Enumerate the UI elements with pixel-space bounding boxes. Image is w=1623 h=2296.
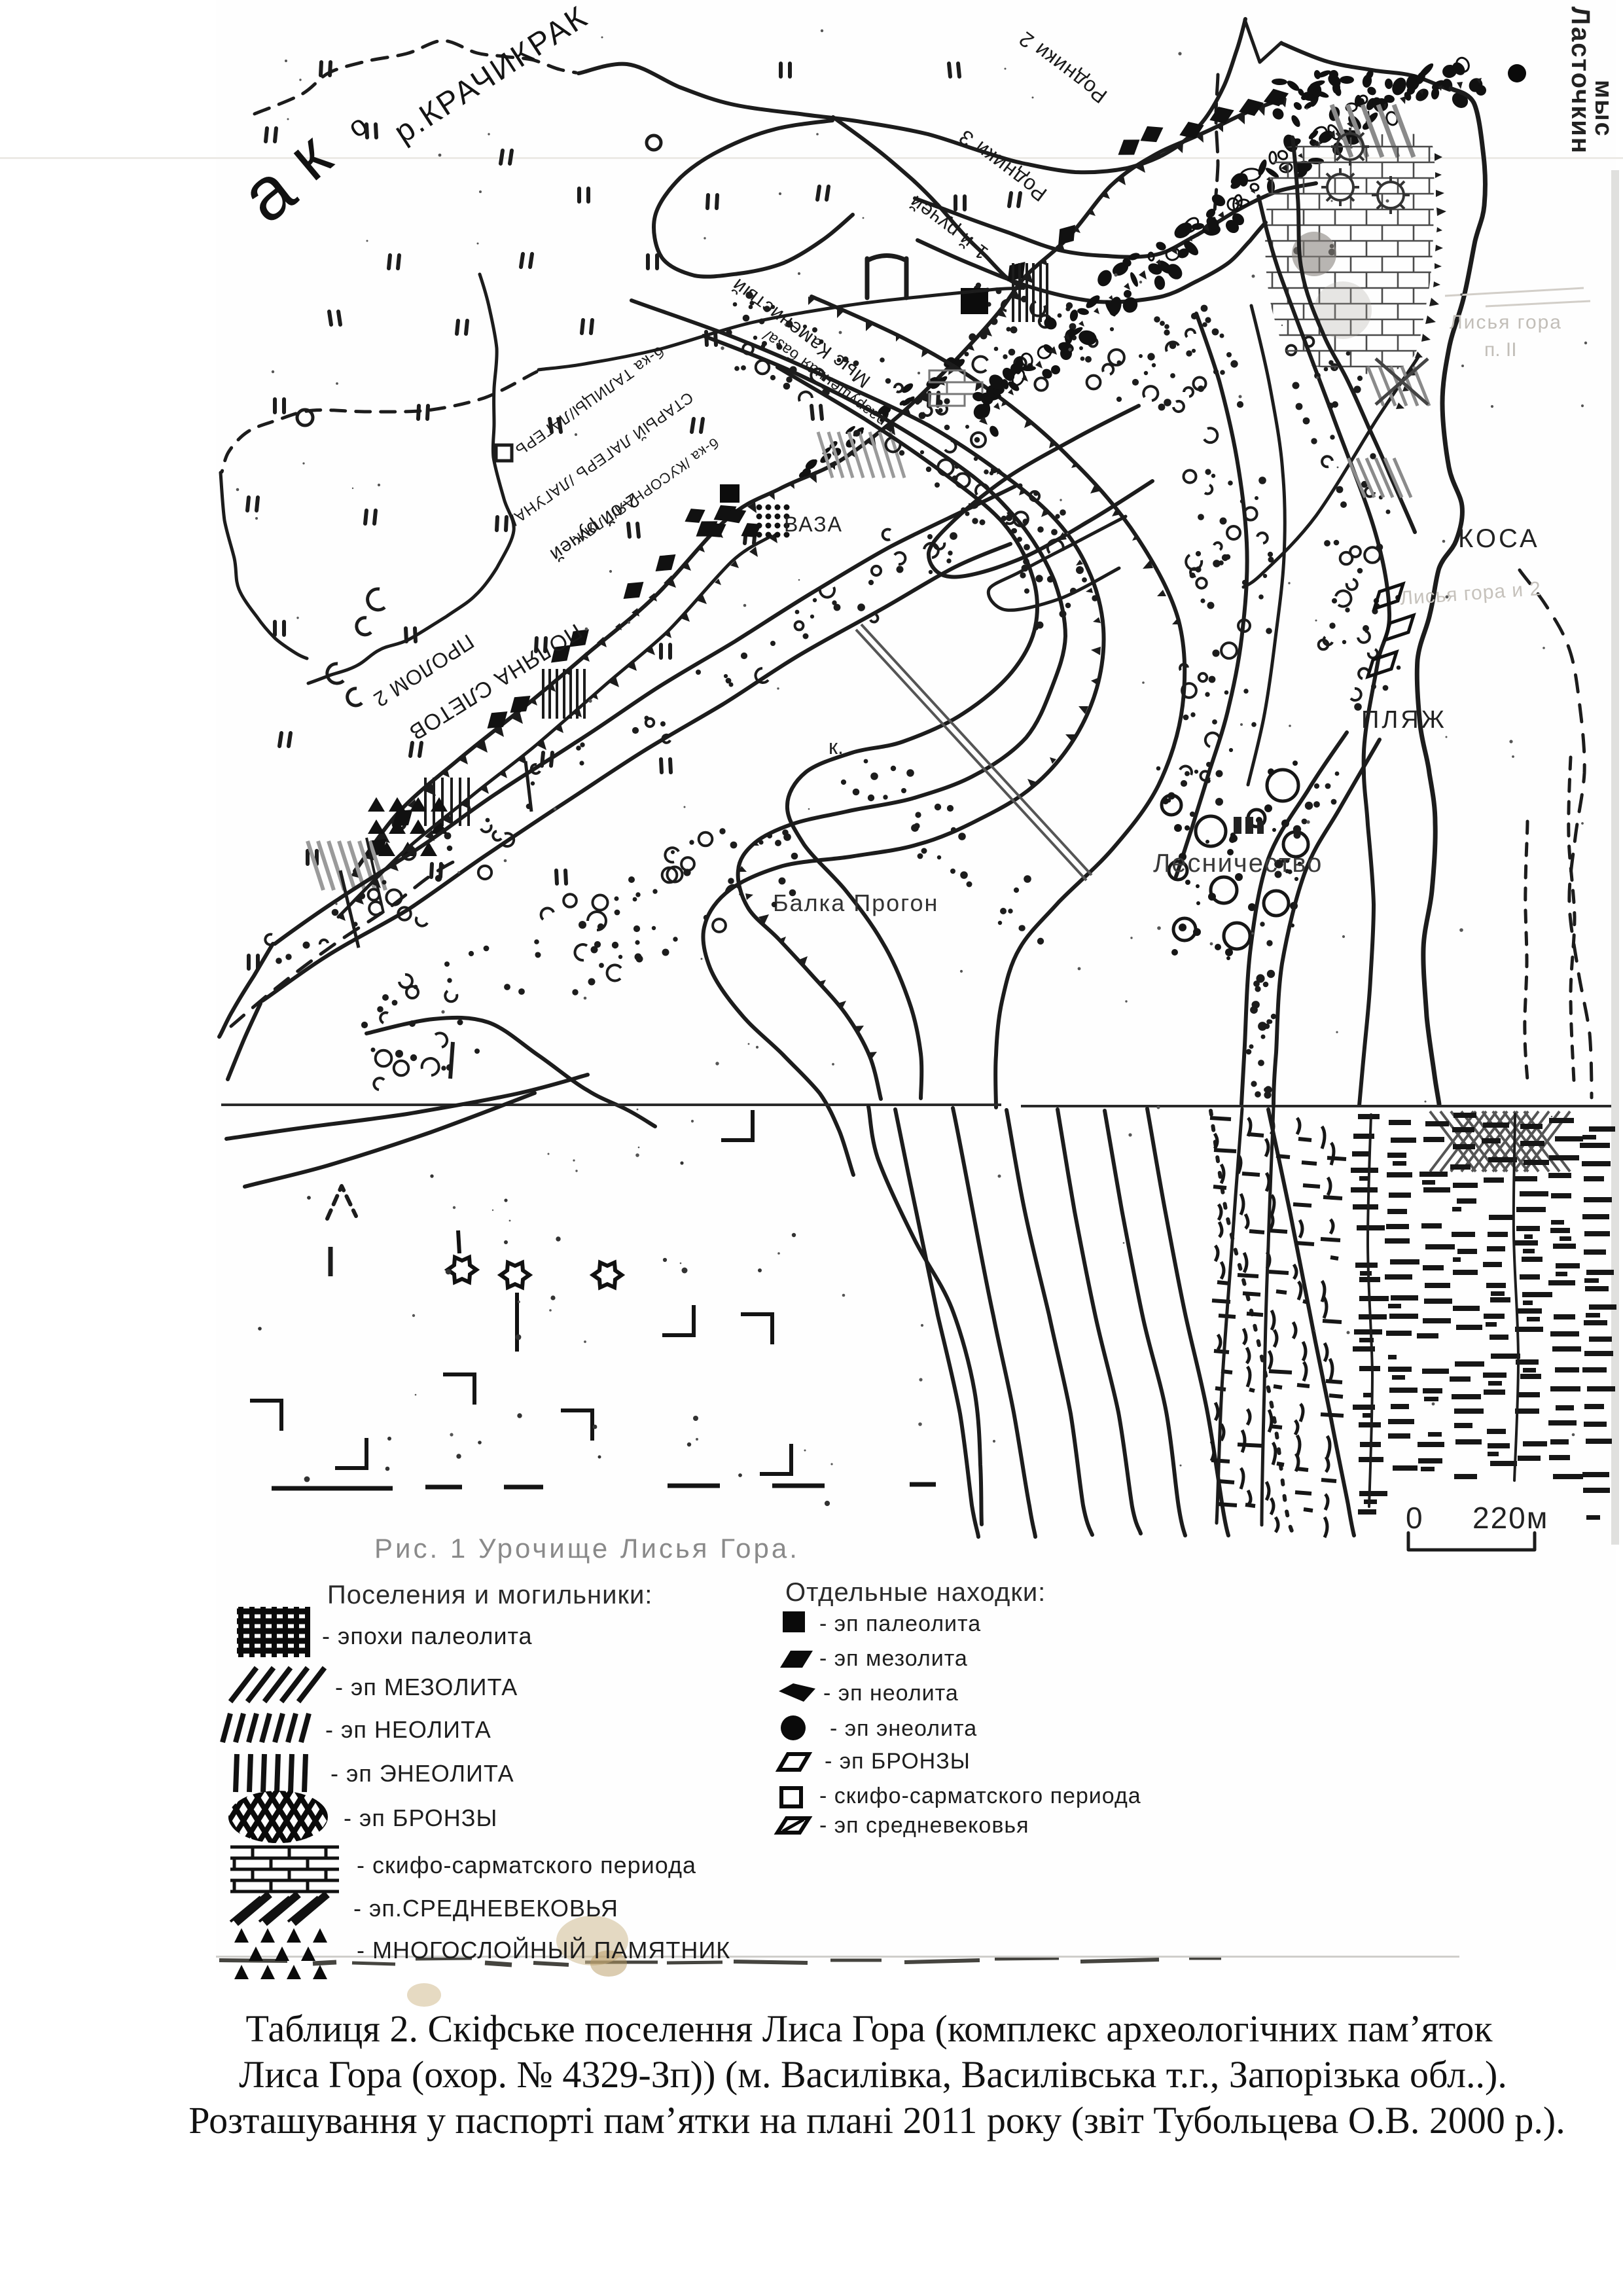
svg-text:мыс: мыс: [1590, 80, 1617, 137]
svg-text:0: 0: [1406, 1501, 1423, 1535]
svg-text:КОСА: КОСА: [1458, 524, 1540, 553]
svg-text:ВАЗА: ВАЗА: [784, 512, 843, 536]
svg-text:- эп палеолита: - эп палеолита: [819, 1611, 981, 1636]
svg-text:Лисья гора: Лисья гора: [1450, 312, 1562, 333]
svg-text:- эп НЕОЛИТА: - эп НЕОЛИТА: [325, 1716, 491, 1743]
svg-text:- эп БРОНЗЫ: - эп БРОНЗЫ: [825, 1749, 971, 1774]
svg-text:- эп энеолита: - эп энеолита: [830, 1716, 977, 1741]
svg-text:- скифо-сарматского периода: - скифо-сарматского периода: [819, 1784, 1141, 1808]
svg-text:п. II: п. II: [1484, 339, 1517, 361]
svg-text:- эп.СРЕДНЕВЕКОВЬЯ: - эп.СРЕДНЕВЕКОВЬЯ: [353, 1895, 618, 1922]
svg-text:- эп средневековья: - эп средневековья: [819, 1813, 1029, 1838]
svg-text:к.: к.: [829, 735, 844, 759]
svg-text:Рис. 1 Урочище Лисья Гора.: Рис. 1 Урочище Лисья Гора.: [374, 1533, 800, 1564]
svg-text:- эпохи палеолита: - эпохи палеолита: [322, 1623, 533, 1649]
svg-text:Отдельные находки:: Отдельные находки:: [785, 1578, 1046, 1607]
svg-text:Балка Прогон: Балка Прогон: [773, 889, 938, 916]
svg-text:- МНОГОСЛОЙНЫЙ ПАМЯТНИК: - МНОГОСЛОЙНЫЙ ПАМЯТНИК: [357, 1936, 730, 1964]
svg-text:- эп МЕЗОЛИТА: - эп МЕЗОЛИТА: [335, 1674, 518, 1700]
svg-text:220м: 220м: [1472, 1501, 1548, 1535]
svg-text:Лесничество: Лесничество: [1153, 849, 1323, 878]
svg-text:- скифо-сарматского периода: - скифо-сарматского периода: [357, 1852, 696, 1878]
svg-text:ПЛЯЖ: ПЛЯЖ: [1361, 706, 1447, 734]
svg-text:- эп ЭНЕОЛИТА: - эп ЭНЕОЛИТА: [330, 1760, 514, 1787]
svg-text:- эп БРОНЗЫ: - эп БРОНЗЫ: [344, 1804, 497, 1831]
svg-text:- эп мезолита: - эп мезолита: [819, 1646, 968, 1671]
svg-text:Поселения и могильники:: Поселения и могильники:: [327, 1581, 652, 1609]
svg-text:- эп неолита: - эп неолита: [823, 1681, 959, 1706]
